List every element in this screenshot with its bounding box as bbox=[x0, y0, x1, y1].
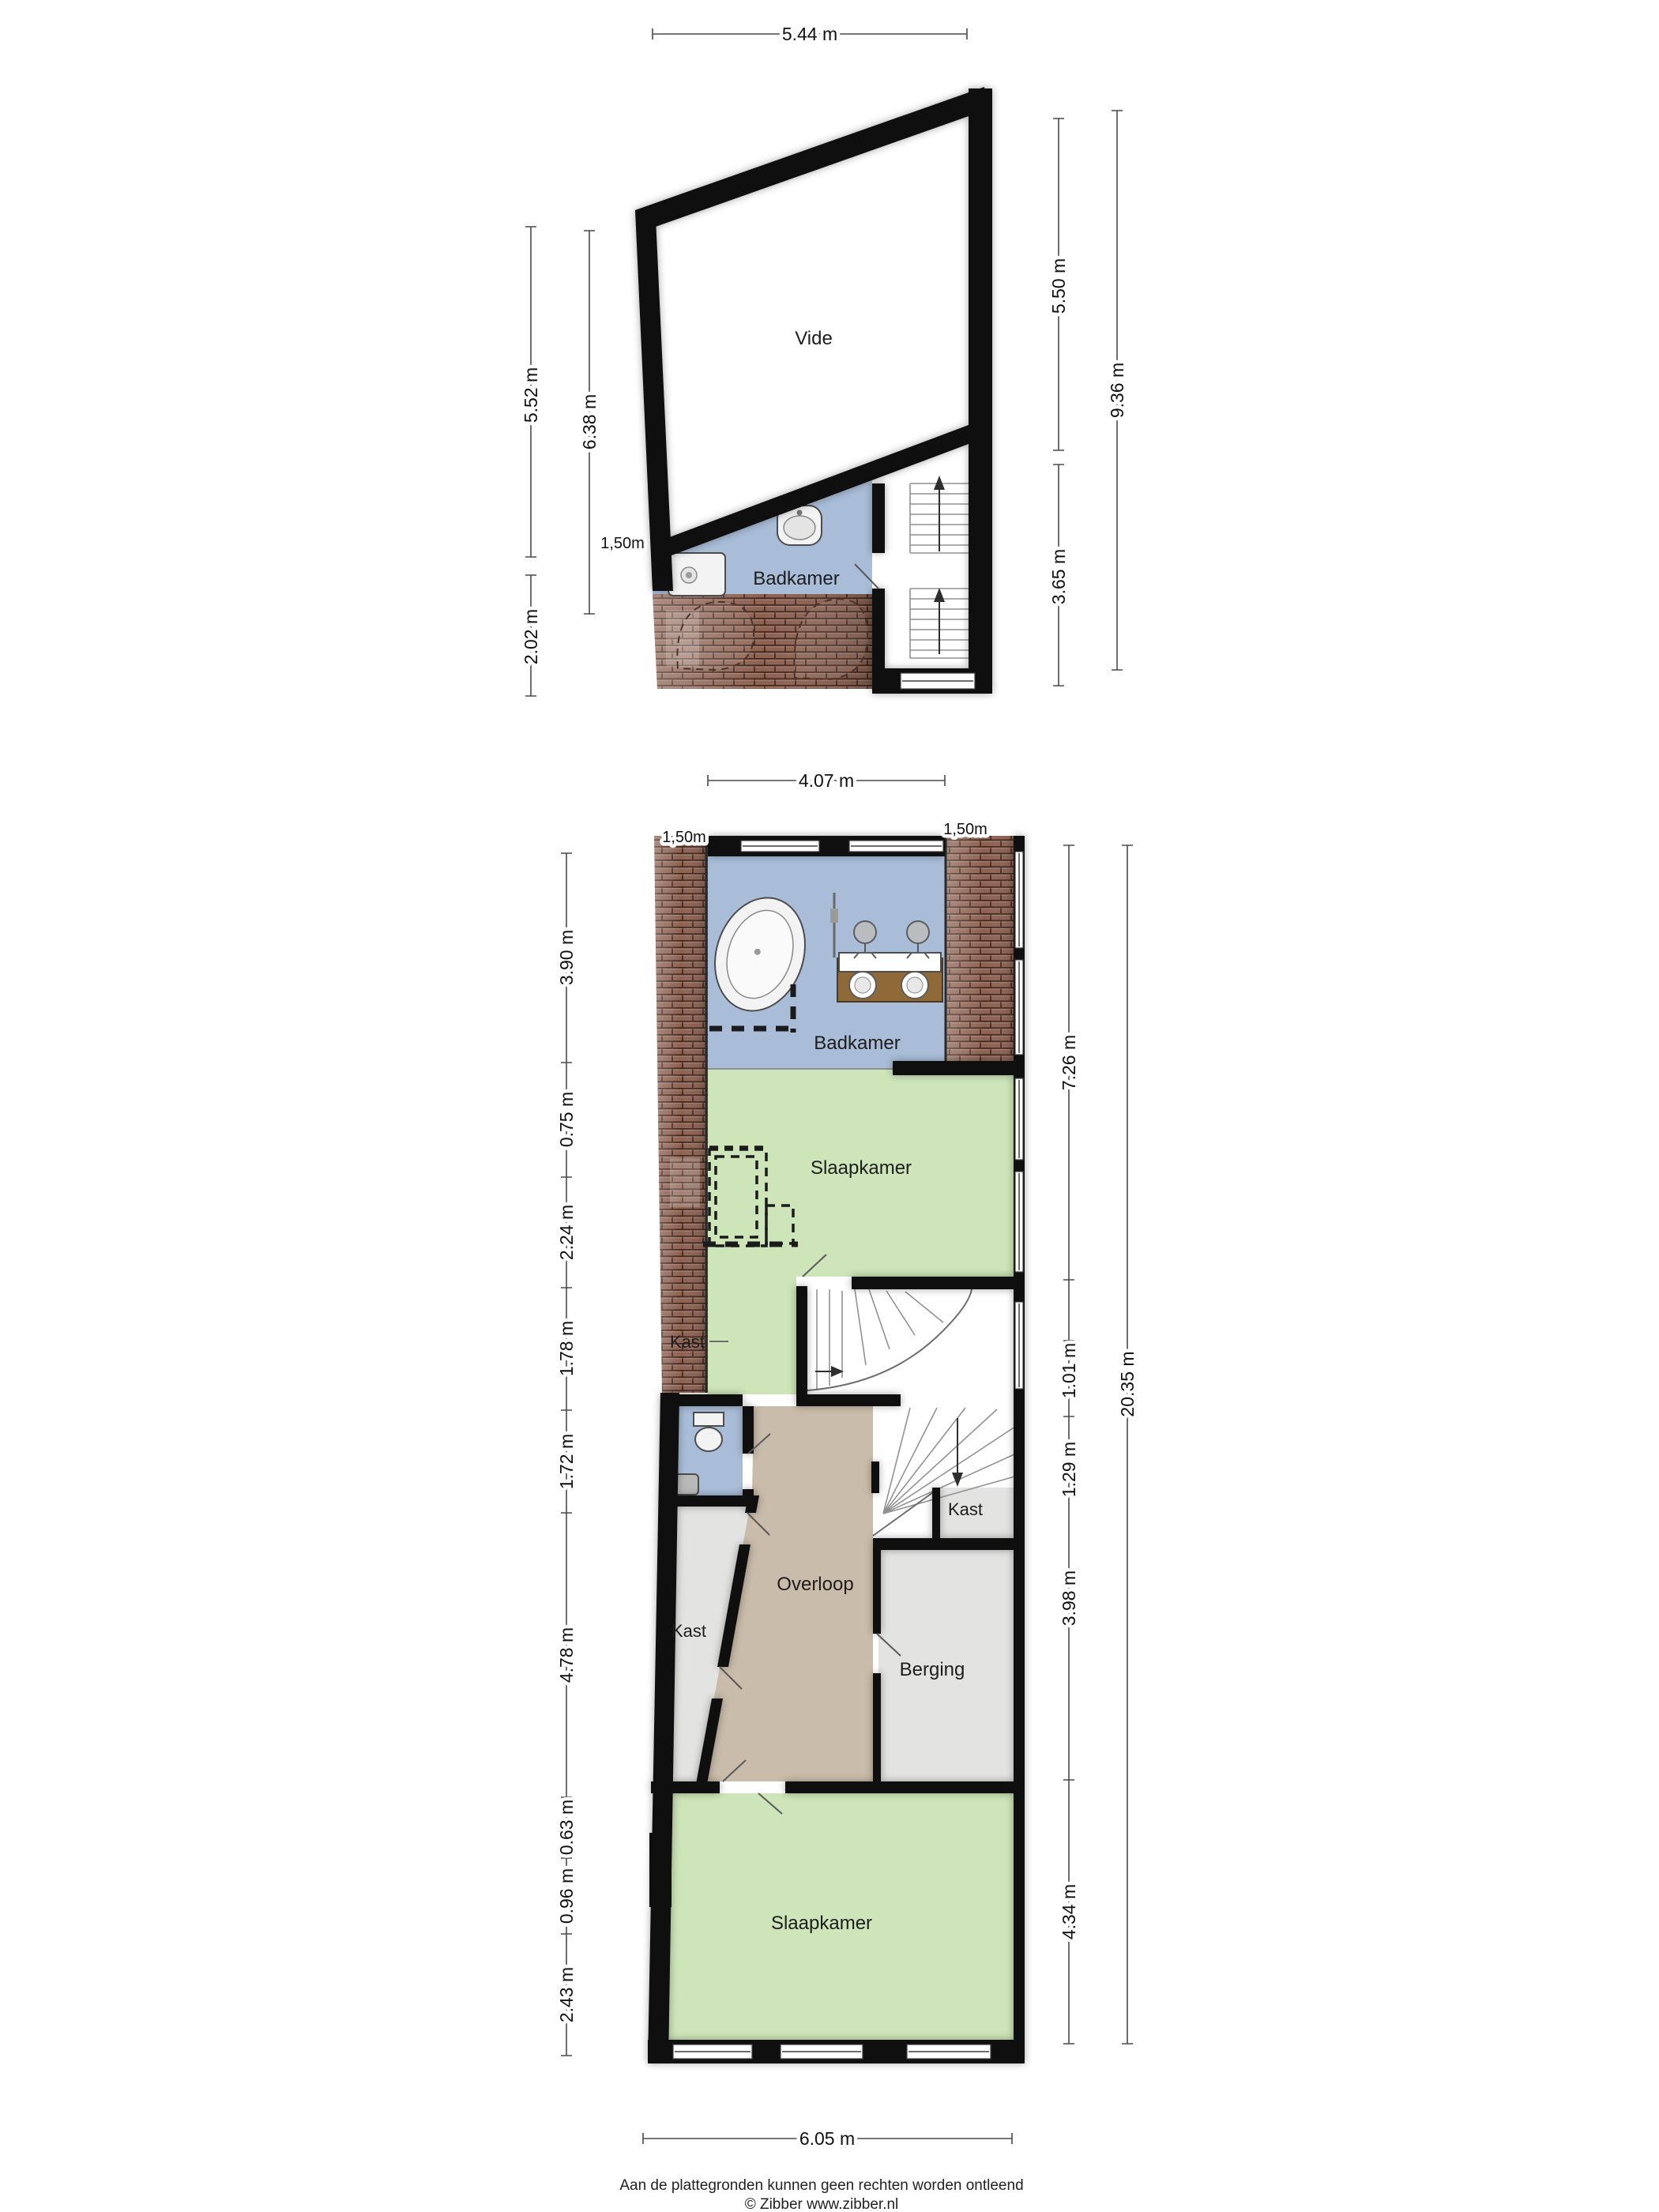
lower-plan: Badkamer Slaapkamer Kast Kast Kast Overl… bbox=[556, 770, 1138, 2149]
room-label-badkamer-lower: Badkamer bbox=[814, 1033, 900, 1054]
room-label-vide: Vide bbox=[795, 328, 833, 349]
stairwell-upper bbox=[885, 447, 969, 668]
shower-icon bbox=[668, 553, 725, 596]
floorplan-canvas: Vide Badkamer 1,50m 5.44 m 5.52 m 2.02 m… bbox=[0, 0, 1659, 2212]
roof-skylight-patch bbox=[670, 1158, 700, 1207]
dim-lower-left: 3.90 m 0.75 m 2.24 m 1.78 m 1.72 m 4.78 … bbox=[556, 853, 577, 2056]
svg-text:2.24 m: 2.24 m bbox=[556, 1205, 577, 1260]
roof-strip-right bbox=[945, 836, 1025, 1066]
footer-disclaimer: Aan de plattegronden kunnen geen rechten… bbox=[619, 2177, 1023, 2194]
room-label-kast-links: Kast bbox=[671, 1621, 706, 1641]
svg-text:Kast: Kast bbox=[670, 1332, 705, 1352]
dim-upper-left-lower: 2.02 m bbox=[521, 575, 541, 696]
svg-text:4.07 m: 4.07 m bbox=[799, 770, 854, 791]
dim-upper-left-inner: 5.52 m bbox=[521, 227, 541, 557]
svg-text:0.96 m: 0.96 m bbox=[556, 1868, 577, 1924]
upper-plan: Vide Badkamer 1,50m 5.44 m 5.52 m 2.02 m… bbox=[521, 24, 1127, 696]
toilet-icon bbox=[694, 1413, 724, 1451]
svg-text:5.50 m: 5.50 m bbox=[1048, 258, 1069, 314]
roof-area-upper bbox=[653, 594, 872, 689]
dim-upper-right-upper: 5.50 m bbox=[1048, 118, 1069, 450]
stairwell-up bbox=[807, 1288, 1014, 1394]
svg-text:5.44 m: 5.44 m bbox=[782, 24, 837, 44]
svg-text:1.72 m: 1.72 m bbox=[556, 1434, 577, 1489]
dim-upper-top: 5.44 m bbox=[653, 24, 967, 44]
dim-lower-bottom: 6.05 m bbox=[643, 2128, 1012, 2149]
dim-roof-right: 1,50m bbox=[943, 821, 987, 838]
svg-text:6.05 m: 6.05 m bbox=[799, 2128, 855, 2149]
dim-upper-right-total: 9.36 m bbox=[1107, 111, 1127, 670]
svg-text:4.34 m: 4.34 m bbox=[1059, 1884, 1079, 1939]
dim-lower-top: 4.07 m bbox=[708, 770, 945, 791]
svg-text:3.90 m: 3.90 m bbox=[556, 930, 577, 985]
dim-lower-right-total: 20.35 m bbox=[1117, 845, 1138, 2044]
svg-text:20.35 m: 20.35 m bbox=[1117, 1351, 1138, 1416]
svg-text:7.26 m: 7.26 m bbox=[1059, 1035, 1079, 1090]
svg-text:3.98 m: 3.98 m bbox=[1059, 1571, 1079, 1626]
svg-text:3.65 m: 3.65 m bbox=[1048, 549, 1069, 604]
roof-strip-left bbox=[654, 836, 708, 1393]
svg-text:0.75 m: 0.75 m bbox=[556, 1092, 577, 1147]
dim-roof-left: 1,50m bbox=[662, 829, 706, 846]
svg-text:9.36 m: 9.36 m bbox=[1107, 363, 1127, 418]
footer-copyright: © Zibber www.zibber.nl bbox=[745, 2196, 899, 2212]
room-label-overloop: Overloop bbox=[777, 1574, 853, 1595]
svg-text:6.38 m: 6.38 m bbox=[579, 394, 600, 450]
dim-roof-height-upper: 1,50m bbox=[600, 535, 645, 552]
svg-text:0.63 m: 0.63 m bbox=[556, 1800, 577, 1855]
room-label-slaapkamer-boven: Slaapkamer bbox=[811, 1157, 912, 1179]
dim-lower-right: 7.26 m 1.01 m 1.29 m 3.98 m 4.34 m bbox=[1059, 845, 1079, 2044]
svg-text:4.78 m: 4.78 m bbox=[556, 1627, 577, 1683]
floorplan-page: Vide Badkamer 1,50m 5.44 m 5.52 m 2.02 m… bbox=[0, 0, 1659, 2212]
dim-upper-left-outer: 6.38 m bbox=[579, 231, 600, 614]
room-label-badkamer-upper: Badkamer bbox=[753, 568, 839, 589]
room-label-kast-rechts: Kast bbox=[948, 1499, 983, 1519]
dim-upper-right-lower: 3.65 m bbox=[1048, 465, 1069, 686]
svg-text:2.02 m: 2.02 m bbox=[521, 609, 541, 664]
room-label-slaapkamer-onder: Slaapkamer bbox=[771, 1913, 872, 1934]
svg-text:1.78 m: 1.78 m bbox=[556, 1321, 577, 1376]
svg-text:1.29 m: 1.29 m bbox=[1059, 1442, 1079, 1497]
svg-text:5.52 m: 5.52 m bbox=[521, 367, 541, 423]
room-label-berging: Berging bbox=[900, 1659, 965, 1680]
svg-text:1.01 m: 1.01 m bbox=[1059, 1343, 1079, 1398]
room-kast-strip bbox=[708, 1277, 796, 1394]
svg-text:2.43 m: 2.43 m bbox=[556, 1967, 577, 2022]
window-upper-bottom bbox=[901, 673, 975, 689]
